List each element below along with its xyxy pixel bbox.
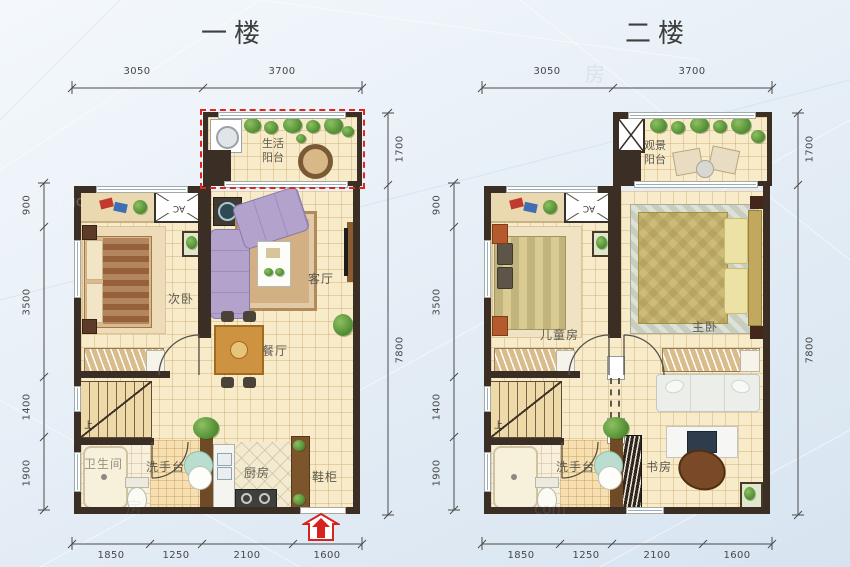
master-pillow: [724, 218, 748, 264]
wall: [484, 438, 564, 445]
dining-stool: [243, 311, 256, 322]
floorplan-page: 一楼 3050 3700 900 3500 1400 1900 1700 780…: [0, 0, 850, 567]
window: [74, 386, 81, 412]
entrance-arrow-icon: [302, 513, 340, 541]
dim-left-3: 1400: [432, 393, 443, 420]
wall: [353, 186, 360, 514]
bed-pillow: [86, 240, 103, 280]
sink-basin: [217, 467, 232, 480]
wall: [74, 371, 170, 378]
nightstand: [82, 225, 97, 240]
nightstand: [492, 224, 508, 244]
nightstand: [82, 319, 97, 334]
balcony-label: 观景阳台: [644, 139, 670, 168]
plant-frame: [740, 482, 763, 509]
bedroom-label: 次卧: [168, 290, 194, 307]
kids-pillow: [497, 267, 513, 289]
master-headboard: [748, 210, 762, 326]
bathroom-label: 卫生间: [84, 455, 123, 472]
shower-drain: [511, 474, 517, 480]
door-arc-bedroom: [158, 334, 200, 376]
dining-stool: [221, 311, 234, 322]
dining-plate: [230, 341, 248, 359]
master-label: 主卧: [692, 318, 718, 335]
counter-plant-icon: [193, 417, 219, 439]
balcony-plant-icon: [690, 117, 709, 133]
sofa-pillow: [664, 378, 686, 395]
dim-line-right: [381, 110, 395, 518]
washbasin-white: [598, 466, 622, 490]
dim-right-2: 7800: [805, 336, 816, 363]
bed-pillow: [86, 283, 103, 323]
ac-label: AC: [168, 201, 190, 213]
dim-bottom-4: 1600: [723, 550, 750, 561]
window: [506, 186, 598, 193]
counter-plant-icon: [603, 417, 629, 439]
balcony-plant-icon: [751, 130, 765, 143]
window: [74, 452, 81, 492]
coffee-table: [257, 241, 291, 287]
washbasin-white: [188, 466, 212, 490]
balcony-plant-icon: [650, 118, 667, 133]
window: [74, 240, 81, 298]
tv: [344, 228, 348, 276]
wall: [484, 371, 580, 378]
sofa-pillow: [730, 378, 752, 395]
ac-closet: AC: [154, 191, 202, 223]
wall-partition: [608, 186, 621, 338]
dim-bottom-3: 2100: [643, 550, 670, 561]
dim-left-1: 900: [22, 195, 33, 215]
dim-top-2: 3700: [268, 66, 295, 77]
dim-bottom-2: 1250: [572, 550, 599, 561]
dim-line-left: [447, 180, 461, 514]
door-arc-bathroom: [561, 441, 599, 479]
floor1-title: 一楼: [201, 13, 267, 50]
stairs-up-label: 上: [494, 418, 503, 431]
dim-top-2: 3700: [678, 66, 705, 77]
shelf-plant-icon: [543, 200, 557, 214]
dim-right-2: 7800: [395, 336, 406, 363]
nightstand: [492, 316, 508, 336]
shelf-plant-icon: [133, 200, 147, 214]
dim-line-top: [478, 80, 776, 94]
dim-top-1: 3050: [123, 66, 150, 77]
master-pillow: [724, 268, 748, 314]
dim-left-4: 1900: [432, 459, 443, 486]
frame-plant-icon: [744, 487, 755, 500]
floorplan-first-floor: 一楼 3050 3700 900 3500 1400 1900 1700 780…: [0, 0, 425, 567]
door-arc-bathroom: [151, 441, 189, 479]
bed: [84, 236, 152, 328]
shower-drain: [101, 474, 107, 480]
dim-line-top: [68, 80, 366, 94]
window: [484, 452, 491, 492]
dim-left-1: 900: [432, 195, 443, 215]
wardrobe-box: [740, 350, 760, 372]
dim-bottom-1: 1850: [97, 550, 124, 561]
window: [628, 112, 756, 119]
table-bowl-icon: [275, 268, 284, 276]
window: [484, 386, 491, 412]
cabinet-plant-icon: [293, 440, 305, 451]
study-sofa: [656, 374, 760, 412]
kids-pillow: [497, 243, 513, 265]
dim-line-left: [37, 180, 51, 514]
shaft-x-box: [617, 117, 645, 153]
dim-bottom-3: 2100: [233, 550, 260, 561]
ac-closet: AC: [564, 191, 612, 223]
table-deco: [266, 248, 280, 258]
sliding-door-window: [634, 181, 758, 188]
dim-line-right: [791, 110, 805, 518]
floorplan-second-floor: 二楼 3050 3700 900 3500 1400 1900 1700 780…: [410, 0, 835, 567]
window: [484, 240, 491, 298]
dining-stool: [221, 377, 234, 388]
void-dashed-line: [610, 378, 612, 418]
door-arc-kids-room: [568, 334, 610, 376]
balcony-plant-icon: [713, 120, 727, 133]
balcony-table: [696, 160, 714, 178]
study-label: 书房: [646, 458, 672, 475]
dining-stool: [243, 377, 256, 388]
balcony-highlight-box: [200, 109, 365, 189]
dim-left-3: 1400: [22, 393, 33, 420]
balcony-plant-icon: [671, 121, 685, 134]
dining-label: 餐厅: [262, 342, 288, 359]
ac-label: AC: [578, 201, 600, 213]
dim-top-1: 3050: [533, 66, 560, 77]
dim-bottom-4: 1600: [313, 550, 340, 561]
dining-table: [214, 325, 264, 375]
shower: [493, 446, 538, 509]
dim-right-1: 1700: [805, 135, 816, 162]
living-label: 客厅: [308, 270, 334, 287]
door-arc-master: [623, 334, 665, 376]
dim-left-4: 1900: [22, 459, 33, 486]
kitchen-counter: [213, 444, 235, 510]
wall: [74, 438, 154, 445]
bed-blanket: [103, 238, 149, 324]
burner: [241, 493, 252, 504]
dim-bottom-1: 1850: [507, 550, 534, 561]
living-plant-icon: [333, 314, 353, 336]
stairs-up-label: 上: [84, 418, 93, 431]
sink-basin: [217, 453, 232, 466]
nightstand: [750, 196, 763, 209]
wall-partition: [198, 186, 211, 338]
shoe-cabinet-label: 鞋柜: [312, 468, 338, 485]
table-bowl-icon: [264, 268, 273, 276]
dim-left-2: 3500: [432, 288, 443, 315]
floor2-title: 二楼: [625, 13, 691, 50]
burner: [259, 493, 270, 504]
dim-line-bottom: [478, 537, 776, 551]
dim-bottom-2: 1250: [162, 550, 189, 561]
dim-left-2: 3500: [22, 288, 33, 315]
master-blanket: [638, 212, 728, 324]
frame-plant-icon: [596, 236, 607, 249]
nightstand: [750, 326, 763, 339]
window: [96, 186, 188, 193]
dim-right-1: 1700: [395, 135, 406, 162]
bookshelf: [621, 435, 642, 511]
wall: [763, 186, 770, 514]
frame-plant-icon: [186, 236, 197, 249]
window: [626, 507, 664, 514]
cabinet-plant-icon: [293, 494, 305, 505]
kitchen-label: 厨房: [244, 464, 270, 481]
void-dashed-line: [618, 378, 620, 418]
